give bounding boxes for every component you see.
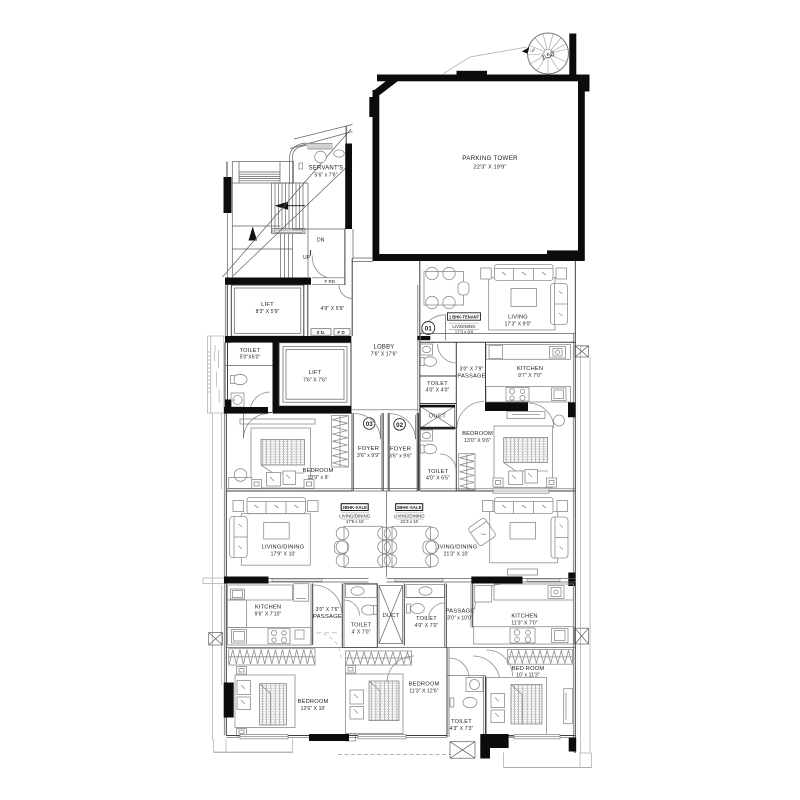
svg-text:PARKING TOWER: PARKING TOWER [462,155,518,162]
svg-text:TOILET: TOILET [351,623,372,629]
svg-text:PASSAGE: PASSAGE [445,609,474,615]
svg-text:5'0"X6'0": 5'0"X6'0" [240,355,261,361]
svg-text:7'6" X 17'6": 7'6" X 17'6" [371,352,398,358]
svg-text:KITCHEN: KITCHEN [255,605,281,611]
svg-text:3'6" x 9'9": 3'6" x 9'9" [357,453,380,459]
svg-text:BEDROOM: BEDROOM [298,699,329,705]
svg-text:LOBBY: LOBBY [373,345,394,351]
svg-text:4'3" X 7'3": 4'3" X 7'3" [450,726,474,732]
svg-text:LIVING/DINING: LIVING/DINING [394,514,426,519]
svg-text:12'6" X 10': 12'6" X 10' [301,706,326,712]
svg-text:21'3 x 10: 21'3 x 10 [400,519,418,524]
svg-text:DUCT: DUCT [383,613,400,619]
svg-text:13'9" x 9': 13'9" x 9' [307,475,328,481]
svg-text:8'3" X 5'9": 8'3" X 5'9" [256,309,280,315]
svg-text:F D: F D [338,330,346,335]
svg-text:4'0" X 6'5": 4'0" X 6'5" [426,476,450,482]
svg-text:3'0" X 7'6": 3'0" X 7'6" [316,607,340,613]
svg-text:21'3" X 10': 21'3" X 10' [444,552,469,558]
svg-text:FOYER: FOYER [390,447,411,453]
svg-text:02: 02 [396,422,403,429]
svg-text:TOILET: TOILET [240,348,261,354]
svg-text:17'9 x 10: 17'9 x 10 [346,519,364,524]
svg-text:7'6" X 7'6": 7'6" X 7'6" [303,378,327,384]
svg-text:9'7" X 7'0": 9'7" X 7'0" [518,373,542,379]
svg-text:TOILET: TOILET [428,469,449,475]
svg-text:LIVING/DINING: LIVING/DINING [262,545,305,551]
svg-text:03: 03 [366,421,373,428]
svg-text:LIV/DINING: LIV/DINING [452,324,476,329]
svg-text:4'9" X 5'9": 4'9" X 5'9" [321,306,345,312]
svg-text:LIFT: LIFT [309,370,322,376]
svg-text:11'3" X 7'0": 11'3" X 7'0" [511,621,537,627]
svg-text:KITCHEN: KITCHEN [511,614,537,620]
svg-text:LIVING/DINING: LIVING/DINING [339,514,371,519]
svg-text:BED ROOM: BED ROOM [512,666,545,672]
svg-text:TOILET: TOILET [416,616,437,622]
svg-text:S D.: S D. [317,330,326,335]
svg-text:2BHK-SALE: 2BHK-SALE [342,505,367,510]
svg-text:SERVANT'S: SERVANT'S [309,166,344,172]
svg-text:UP: UP [303,255,311,261]
svg-text:3'0" X 7'9": 3'0" X 7'9" [460,367,484,373]
svg-text:FOYER: FOYER [358,446,379,452]
svg-text:01: 01 [425,326,433,333]
svg-text:LIVING/DINING: LIVING/DINING [435,545,478,551]
svg-text:KITCHEN: KITCHEN [517,366,543,372]
svg-text:1 BHK-TENANT: 1 BHK-TENANT [449,314,480,319]
svg-text:4' X 7'0": 4' X 7'0" [351,630,370,636]
svg-text:2BHK-SALE: 2BHK-SALE [397,505,422,510]
svg-text:TOILET: TOILET [427,381,448,387]
svg-text:LIFT: LIFT [261,302,274,308]
svg-text:TOILET: TOILET [451,719,472,725]
svg-text:BEDROOM: BEDROOM [409,682,440,688]
svg-text:F RD: F RD [325,279,336,284]
svg-text:11'3" X 12'6": 11'3" X 12'6" [409,689,438,695]
svg-text:3'6" x 9'6": 3'6" x 9'6" [389,454,412,460]
svg-text:4'0" X 7'0": 4'0" X 7'0" [415,623,439,629]
svg-text:17'9" X 10': 17'9" X 10' [271,552,296,558]
svg-text:LIVING: LIVING [508,315,528,321]
svg-text:BEDROOM: BEDROOM [462,431,493,437]
svg-text:BEDROOM: BEDROOM [303,468,334,474]
svg-text:22'3" X 19'9": 22'3" X 19'9" [474,165,507,171]
svg-text:5'6" x 7'6": 5'6" x 7'6" [315,173,338,179]
svg-text:DUCT: DUCT [429,414,446,420]
svg-text:3'0" x 10'0": 3'0" x 10'0" [447,616,473,622]
svg-text:4'0" X 4'0": 4'0" X 4'0" [426,388,450,394]
svg-text:17'3" X 9'0": 17'3" X 9'0" [505,322,532,328]
svg-text:13'0" X 9'6": 13'0" X 9'6" [464,438,491,444]
svg-text:PASSAGE: PASSAGE [457,374,485,380]
svg-text:PASSAGE: PASSAGE [313,614,342,620]
svg-text:DN: DN [317,238,325,244]
svg-text:9'6" X 7'10": 9'6" X 7'10" [255,612,282,618]
